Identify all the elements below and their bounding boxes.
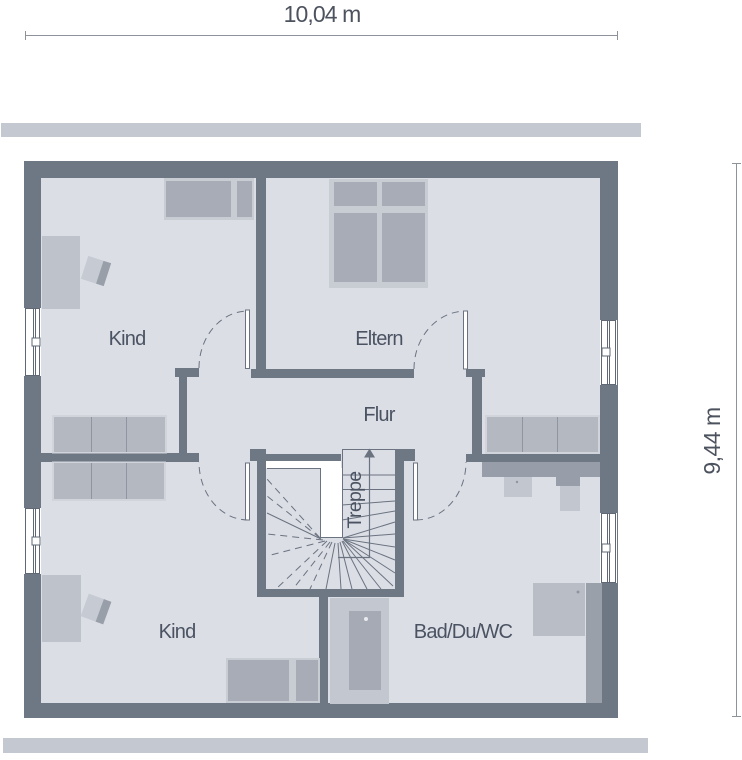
svg-text:Bad/Du/WC: Bad/Du/WC <box>414 621 513 643</box>
svg-text:Flur: Flur <box>363 404 395 426</box>
svg-text:Kind: Kind <box>109 328 146 350</box>
svg-text:9,44 m: 9,44 m <box>699 407 725 474</box>
svg-text:10,04 m: 10,04 m <box>284 1 361 27</box>
svg-text:Treppe: Treppe <box>344 472 366 529</box>
svg-text:Eltern: Eltern <box>355 328 402 350</box>
svg-text:Kind: Kind <box>159 621 196 643</box>
